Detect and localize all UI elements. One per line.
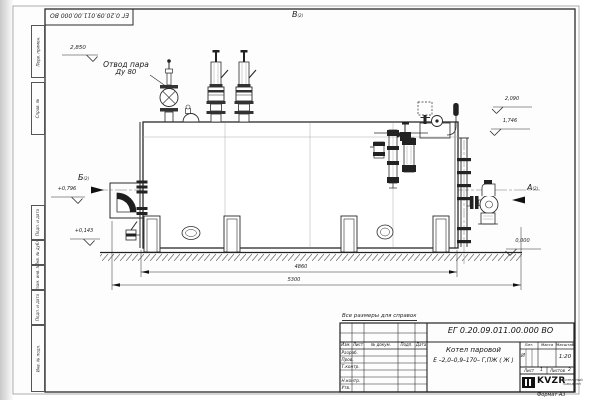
- kvzr-logo-icon: [522, 377, 535, 388]
- row-label-tkontr: Т.контр.: [342, 365, 360, 370]
- margin-box-inv-podl: Инв. № подл.: [31, 325, 45, 392]
- drawing-sheet: Перв. примен. Справ. № Подп. и дата Инв.…: [0, 0, 600, 400]
- sheets-label: Листов: [550, 369, 565, 373]
- col-header-podp: Подп.: [398, 343, 415, 347]
- elevation-burner-axis: +0,796: [49, 187, 85, 193]
- kvzr-logo-caption: КОТЕЛЬНЫЙ ЗАВОД РЭП: [563, 379, 583, 387]
- row-label-prov: Пров.: [342, 358, 354, 363]
- scale-value: 1:20: [556, 354, 574, 360]
- sheet-label: Лист: [524, 369, 534, 373]
- col-header-izm: Изм.: [340, 343, 352, 347]
- margin-box-podp-data-2: Подп. и дата: [31, 290, 45, 325]
- doc-number-top-box: ЕГ 0.20.09.011.00.000 ВО: [45, 11, 133, 18]
- view-label-a: А(2): [527, 184, 538, 193]
- row-label-razrab: Разраб.: [342, 351, 358, 356]
- dimension-boiler-length: 4860: [279, 265, 323, 271]
- sheet-value: 1: [540, 369, 543, 374]
- elevation-base: +0,143: [68, 229, 100, 235]
- lit-value: И: [520, 354, 526, 360]
- col-header-list: Лист: [352, 343, 364, 347]
- ground-line: [100, 253, 522, 262]
- kvzr-logo-text: KVZR: [537, 377, 566, 387]
- mass-header: Масса: [538, 343, 556, 347]
- product-name-line2: Е –2,0–0,9–170– Г,ПЖ ( Ж ): [427, 358, 520, 364]
- steam-outlet-label: Отвод пара Ду 80: [95, 61, 157, 77]
- margin-box-perv-primen: Перв. примен.: [31, 25, 45, 78]
- elevation-valves-top: 2,850: [60, 45, 96, 51]
- lit-header: Лит.: [520, 343, 538, 347]
- view-label-v: В(2): [292, 11, 303, 20]
- elevation-shell-top: 1,746: [490, 119, 530, 125]
- scale-header: Масштаб: [556, 343, 574, 347]
- reference-note: Все размеры для справок: [342, 313, 417, 321]
- margin-box-inv-dubl: Инв. № дубл.: [31, 240, 45, 265]
- row-label-utv: Утв.: [342, 386, 351, 391]
- col-header-data: Дата: [415, 343, 427, 347]
- row-label-nkontr: Н.контр.: [342, 379, 361, 384]
- product-name-line1: Котел паровой: [427, 347, 520, 355]
- margin-box-podp-data-1: Подп. и дата: [31, 205, 45, 240]
- title-block-doc-number: ЕГ 0.20.09.011.00.000 ВО: [427, 327, 574, 336]
- elevation-dome-top: 2,090: [492, 97, 532, 103]
- margin-box-sprav-no: Справ. №: [31, 82, 45, 135]
- sheets-value: 2: [568, 369, 571, 374]
- col-header-ndoc: № докум.: [364, 343, 398, 347]
- drawing-linework: [0, 0, 600, 400]
- view-label-b: Б(2): [78, 174, 89, 183]
- elevation-ground: 0,000: [505, 239, 540, 245]
- dimension-overall-length: 5300: [272, 278, 316, 284]
- format-label: Формат А3: [537, 393, 565, 399]
- margin-box-vzam-inv: Взам. инв. №: [31, 265, 45, 290]
